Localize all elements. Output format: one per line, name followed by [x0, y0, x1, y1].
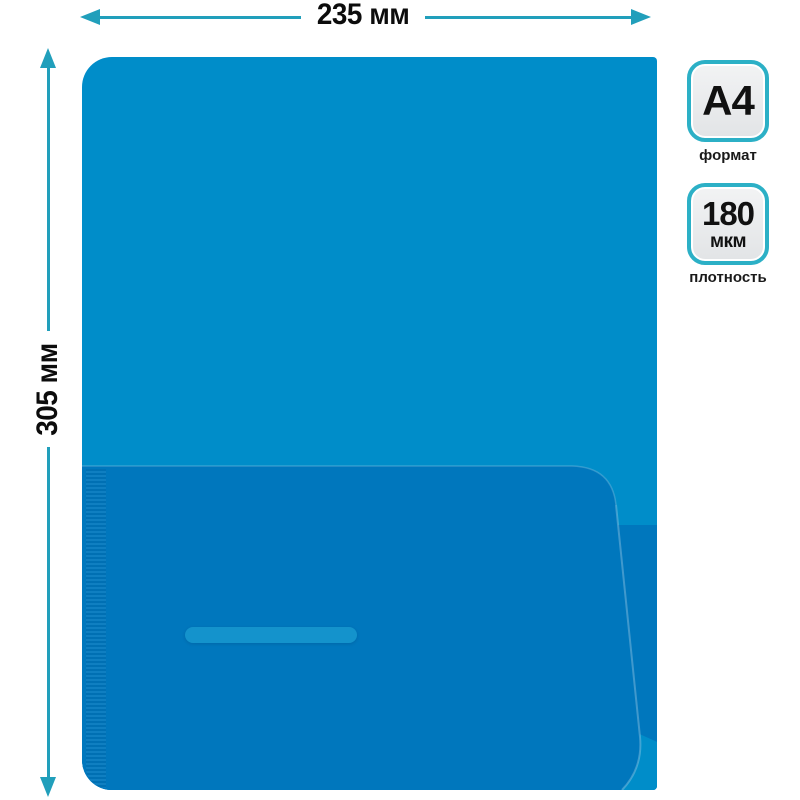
height-dimension-arrow: 305 мм — [36, 48, 60, 797]
density-badge-caption: плотность — [667, 269, 789, 286]
folder-pocket-front — [82, 465, 642, 790]
folder-image — [82, 57, 657, 790]
card-slot — [185, 627, 357, 643]
height-dimension-label: 305 мм — [31, 343, 65, 436]
density-badge: 180 мкм — [687, 183, 769, 265]
format-badge: A4 — [687, 60, 769, 142]
product-card: 235 мм 305 мм A4 формат 180 мкм плотност… — [0, 0, 800, 800]
density-badge-value: 180 — [702, 197, 754, 230]
width-dimension-label: 235 мм — [303, 0, 422, 32]
arrowhead-down-icon — [40, 777, 56, 797]
arrowhead-left-icon — [80, 9, 100, 25]
arrowhead-up-icon — [40, 48, 56, 68]
format-badge-value: A4 — [702, 80, 754, 122]
dimension-line — [47, 68, 50, 331]
spine-weld-texture — [86, 469, 106, 788]
dimension-line — [47, 447, 50, 777]
dimension-line — [100, 16, 301, 19]
density-badge-unit: мкм — [710, 232, 746, 251]
format-badge-caption: формат — [667, 147, 789, 164]
width-dimension-arrow: 235 мм — [80, 2, 651, 32]
arrowhead-right-icon — [631, 9, 651, 25]
dimension-line — [425, 16, 631, 19]
